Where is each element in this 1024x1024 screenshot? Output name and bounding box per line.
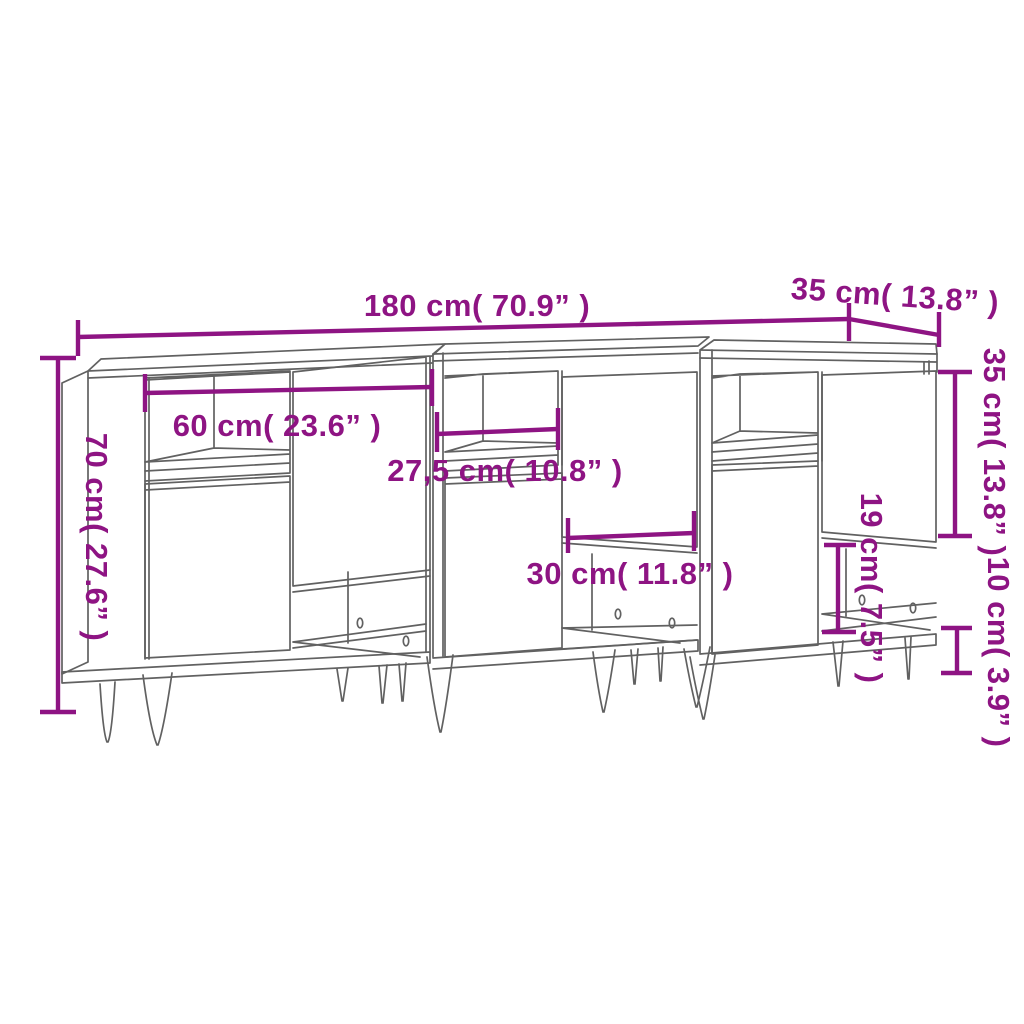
door-bottom-left [145,476,290,658]
top-slab [433,337,709,354]
dimension-lines [40,303,972,712]
dimension-label-top-depth: 35 cm( 13.8” ) [790,271,1001,320]
sideboard-left [62,344,445,745]
hairpin-leg [399,663,406,701]
dimension-line-leg-clearance [941,628,972,673]
dimension-label-leg-clearance: 10 cm( 3.9” ) [981,557,1016,748]
hairpin-leg [833,641,843,686]
sideboard-dimension-drawing: 180 cm( 70.9” ) 35 cm( 13.8” ) 70 cm( 27… [0,0,1024,1024]
hairpin-leg [593,650,615,712]
top-slab [88,344,445,371]
dimension-diagram: 180 cm( 70.9” ) 35 cm( 13.8” ) 70 cm( 27… [0,0,1024,1024]
cable-hole [357,618,362,628]
hairpin-leg [143,673,172,745]
hairpin-leg [684,647,710,707]
hairpin-leg [631,649,638,684]
top-slab [700,340,937,354]
hairpin-leg [427,655,453,732]
dimension-line-door-width [568,511,694,553]
dimension-label-door-width: 30 cm( 11.8” ) [527,556,734,591]
dimension-label-total-height: 70 cm( 27.6” ) [79,433,114,642]
dimension-label-open-compartment-height: 19 cm( 7.5” ) [854,493,889,684]
open-compartment [712,372,822,461]
dimension-label-door-height: 35 cm( 13.8” ) [977,348,1012,557]
dimension-label-total-width: 180 cm( 70.9” ) [364,288,590,323]
cable-hole [615,609,620,619]
dimension-line-top-depth [849,312,939,347]
dimension-label-middle-shelf-width: 27,5 cm( 10.8” ) [387,453,622,488]
cable-hole [403,636,408,646]
dimension-label-left-inner-width: 60 cm( 23.6” ) [173,408,382,443]
hairpin-leg [337,668,348,701]
dimension-line-door-height [938,372,972,536]
dimension-line-middle-shelf-width [437,408,558,452]
hairpin-leg [100,682,115,742]
hairpin-leg [905,637,911,679]
dimension-line-total-height [40,358,76,712]
furniture-line-art [62,337,937,745]
hairpin-leg [658,647,663,681]
sideboard-right [690,340,937,719]
plinth [62,652,430,683]
hairpin-leg [379,665,387,703]
